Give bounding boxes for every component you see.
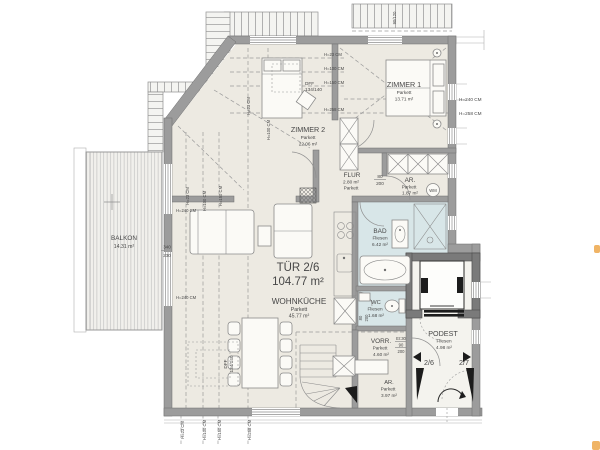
room-area-bad: 6.42 m² <box>372 242 388 247</box>
roof-window-size: 134/140 <box>305 87 322 92</box>
room-name-balkon: BALKON <box>111 235 137 242</box>
scan-artifacts <box>592 245 600 450</box>
room-floor-ar-top: Parkett <box>402 185 418 190</box>
balcony-door <box>164 252 172 306</box>
balcony-height-dim: 230 <box>163 253 171 258</box>
door-width-tag: 80 <box>377 174 383 179</box>
fire-door-height-tag: 200 <box>398 349 406 354</box>
bathtub-icon <box>360 256 410 284</box>
room-area-ar-bottom: 3.97 m² <box>381 393 397 398</box>
window-annex-east-2 <box>472 330 480 344</box>
height-h23-s: H=23 CM <box>180 421 185 439</box>
room-floor-bad: Fliesen <box>372 236 388 241</box>
wc-door-width-tag: 80 <box>358 315 363 320</box>
roof-window-size-2: 134/140 <box>229 355 234 372</box>
coffee-table-icon <box>258 226 271 246</box>
height-h100-z2v: H=100 CM <box>266 119 271 140</box>
room-area-podest: 4.98 m² <box>436 345 452 350</box>
room-floor-vorr: Parkett <box>373 346 389 351</box>
room-area-wohnkueche: 45.77 m² <box>289 314 310 320</box>
unit-area: 104.77 m² <box>272 276 324 288</box>
room-floor-flur: Parkett <box>344 186 360 191</box>
height-h150-s: H=150 CM <box>217 419 222 440</box>
window-south <box>252 408 300 416</box>
apartment-door-left-tag: 2/6 <box>424 358 434 367</box>
height-h23-z2v: H=23 CM <box>246 97 251 115</box>
room-name-vorr: VORR. <box>371 338 391 345</box>
room-name-ar-top: AR. <box>405 177 416 184</box>
height-h240-east: H=240 CM <box>459 97 482 102</box>
room-area-ar-top: 1.87 m² <box>402 191 418 196</box>
room-area-vorr: 4.60 m² <box>373 352 389 357</box>
room-name-bad: BAD <box>373 228 387 235</box>
room-area-zimmer2: 22.06 m² <box>299 142 318 147</box>
room-name-flur: FLUR <box>344 172 361 179</box>
fire-rating-tag: EI:30 <box>396 336 406 341</box>
exit-opening-south <box>436 408 458 424</box>
room-name-zimmer2: ZIMMER 2 <box>291 125 325 134</box>
elevator-icon <box>420 261 464 317</box>
room-name-wc: WC <box>371 300 380 306</box>
floorplan-page: TÜR 2/6 104.77 m² WOHNKÜCHE Parkett 45.7… <box>0 0 600 450</box>
roof-window-label: DFF <box>305 81 314 86</box>
room-floor-podest: Fliesen <box>436 339 452 344</box>
window-west <box>164 164 172 214</box>
apartment-door-right-tag: 2/7 <box>459 358 469 367</box>
height-h100-wl: H=100 CM <box>202 190 207 211</box>
room-name-ar-bottom: AR. <box>384 380 394 386</box>
room-name-podest: PODEST <box>428 329 458 338</box>
room-area-zimmer1: 13.71 m² <box>395 97 414 102</box>
room-floor-wc: Fliesen <box>367 307 383 312</box>
room-area-flur: 2.80 m² <box>343 180 359 185</box>
height-h23-z2: H=23 CM <box>324 52 342 57</box>
height-h240-wl2: H=240 CM <box>176 295 197 300</box>
room-name-wohnkueche: WOHNKÜCHE <box>272 296 327 306</box>
balcony-width-dim: 340 <box>163 245 171 250</box>
roof-window-label-2: DFF <box>223 359 228 368</box>
chimney-icon <box>300 188 316 203</box>
room-floor-zimmer2: Parkett <box>301 135 317 140</box>
window-size-tag: 90/120 <box>392 11 397 24</box>
washing-machine-label: WM <box>429 188 437 193</box>
window-north-zimmer2 <box>250 36 296 44</box>
height-h150-wl: H=150 CM <box>218 185 223 206</box>
height-h240-wl: H=240 CM <box>176 208 197 213</box>
window-annex-east-1 <box>472 282 491 298</box>
window-east-2 <box>448 128 467 144</box>
wardrobe-ar-icon <box>388 154 448 174</box>
sofa-icon <box>190 204 312 258</box>
unit-title: TÜR 2/6 <box>277 262 320 274</box>
room-area-wc: 1.68 m² <box>368 313 384 318</box>
room-name-zimmer1: ZIMMER 1 <box>387 80 421 89</box>
door-height-tag: 200 <box>376 181 384 186</box>
room-floor-wohnkueche: Parkett <box>291 307 308 313</box>
height-h258-s: H=258 CM <box>247 419 252 440</box>
wc-sink-icon <box>359 293 370 301</box>
height-h258-east: H=258 CM <box>459 111 482 116</box>
room-floor-zimmer1: Parkett <box>397 90 413 95</box>
room-floor-ar-bottom: Parkett <box>381 387 397 392</box>
height-h100-z2: H=100 CM <box>324 66 345 71</box>
height-h100-s: H=100 CM <box>202 419 207 440</box>
window-east-4 <box>448 216 456 230</box>
room-area-balkon: 14.31 m² <box>114 244 135 250</box>
floor-plan: TÜR 2/6 104.77 m² WOHNKÜCHE Parkett 45.7… <box>0 0 600 450</box>
height-h23-wl: H=23 CM <box>185 187 190 205</box>
window-east-3 <box>448 164 456 178</box>
height-h258-z2: H=258 CM <box>324 107 345 112</box>
fire-door-width-tag: 90 <box>399 343 404 348</box>
wardrobe-zimmer1-icon <box>340 118 358 170</box>
washbasin-icon <box>392 220 408 248</box>
wc-door-height-tag: 200 <box>364 314 369 322</box>
window-north-zimmer1 <box>368 36 402 44</box>
height-h150-z2: H=150 CM <box>324 80 345 85</box>
